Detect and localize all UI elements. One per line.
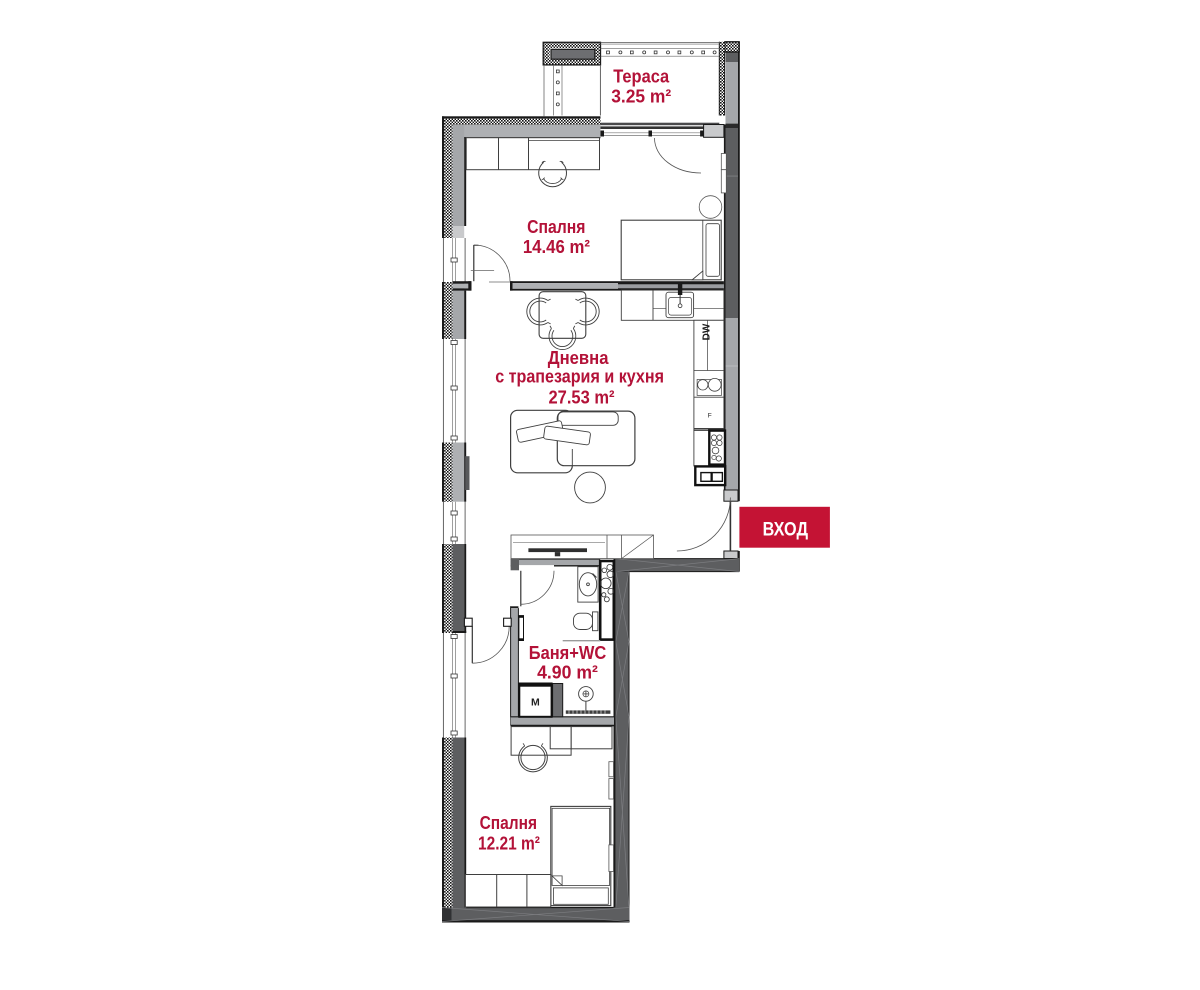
svg-text:M: M bbox=[531, 697, 540, 709]
svg-text:Баня+WC: Баня+WC bbox=[529, 643, 607, 663]
svg-text:14.46 m²: 14.46 m² bbox=[523, 237, 590, 257]
svg-text:27.53 m²: 27.53 m² bbox=[549, 388, 615, 408]
svg-text:ВХОД: ВХОД bbox=[763, 518, 808, 540]
svg-text:Тераса: Тераса bbox=[613, 67, 670, 87]
svg-text:Дневна: Дневна bbox=[548, 348, 610, 368]
svg-text:Спалня: Спалня bbox=[480, 813, 537, 833]
svg-text:4.90 m²: 4.90 m² bbox=[537, 662, 598, 682]
svg-text:с трапезария и кухня: с трапезария и кухня bbox=[495, 367, 664, 387]
svg-text:Спалня: Спалня bbox=[527, 217, 585, 237]
svg-text:12.21 m²: 12.21 m² bbox=[478, 833, 540, 853]
svg-text:F: F bbox=[708, 413, 712, 420]
svg-text:3.25 m²: 3.25 m² bbox=[611, 87, 671, 107]
svg-text:DW: DW bbox=[702, 323, 713, 340]
